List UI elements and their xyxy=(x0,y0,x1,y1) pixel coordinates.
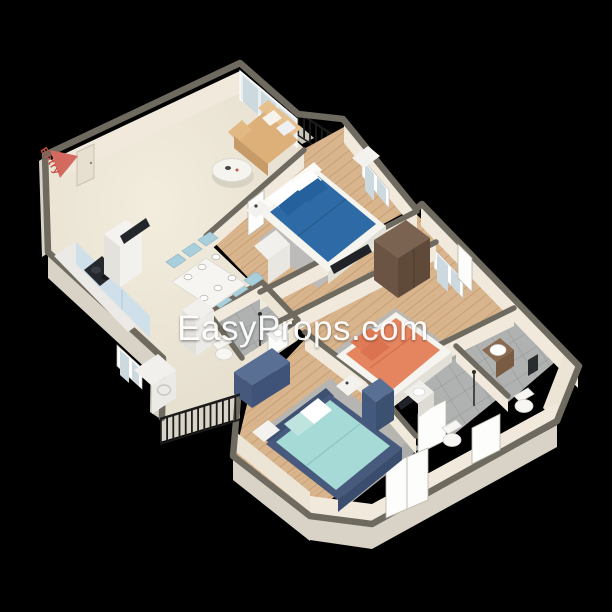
coffee-table xyxy=(212,159,252,182)
table-decor xyxy=(225,166,231,170)
lamp xyxy=(254,204,257,207)
pot xyxy=(91,267,101,274)
basin xyxy=(413,388,425,396)
table-decor-red xyxy=(236,169,239,172)
toilet xyxy=(216,348,233,360)
floorplan-render: Entry EasyProps.com xyxy=(0,0,612,612)
toilet xyxy=(443,434,461,447)
floorplan-svg: Entry EasyProps.com xyxy=(0,0,612,612)
entry-door xyxy=(77,144,94,186)
lamp xyxy=(346,382,349,385)
watermark-text: EasyProps.com xyxy=(177,309,429,348)
shower-head xyxy=(472,370,476,374)
entry-door-handle xyxy=(90,162,92,164)
toilet xyxy=(515,400,533,413)
basin xyxy=(490,345,506,356)
